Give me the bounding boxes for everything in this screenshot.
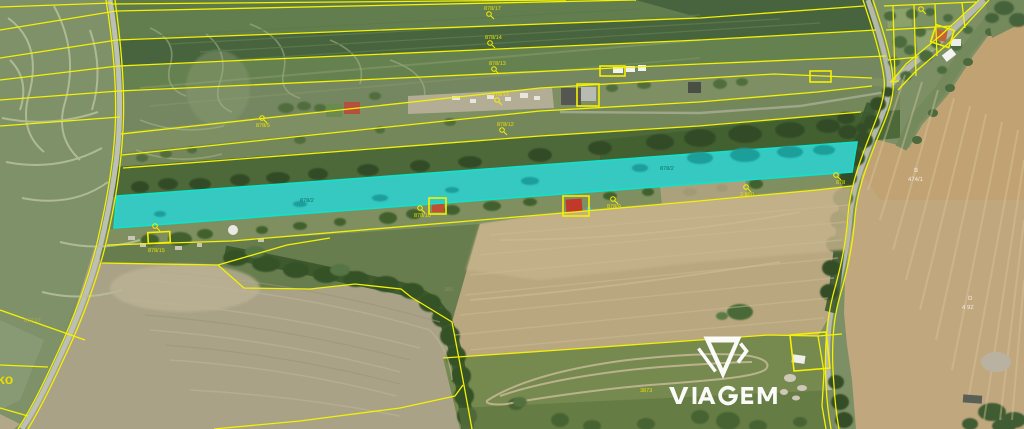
svg-text:878/17: 878/17 [484,6,501,12]
svg-text:878/12: 878/12 [497,122,514,128]
svg-text:385: 385 [444,287,453,293]
svg-text:878/9: 878/9 [607,204,621,210]
svg-text:878/5: 878/5 [256,123,270,129]
svg-text:878/14: 878/14 [485,35,502,41]
svg-text:878/2: 878/2 [300,198,314,204]
svg-text:878/2: 878/2 [660,166,674,172]
svg-text:ko: ko [0,371,13,387]
svg-text:3873: 3873 [640,388,652,394]
svg-text:D: D [968,295,973,302]
svg-text:878/13: 878/13 [489,61,506,67]
svg-text:878/13: 878/13 [492,92,509,98]
svg-text:867/17: 867/17 [24,318,41,324]
svg-text:474/1: 474/1 [908,176,924,183]
svg-text:878/10: 878/10 [414,213,431,219]
svg-text:B: B [914,167,918,174]
svg-text:878: 878 [836,180,845,186]
svg-text:878/15: 878/15 [148,248,165,254]
svg-text:4 92: 4 92 [962,304,974,311]
svg-text:3 880: 3 880 [740,192,754,198]
